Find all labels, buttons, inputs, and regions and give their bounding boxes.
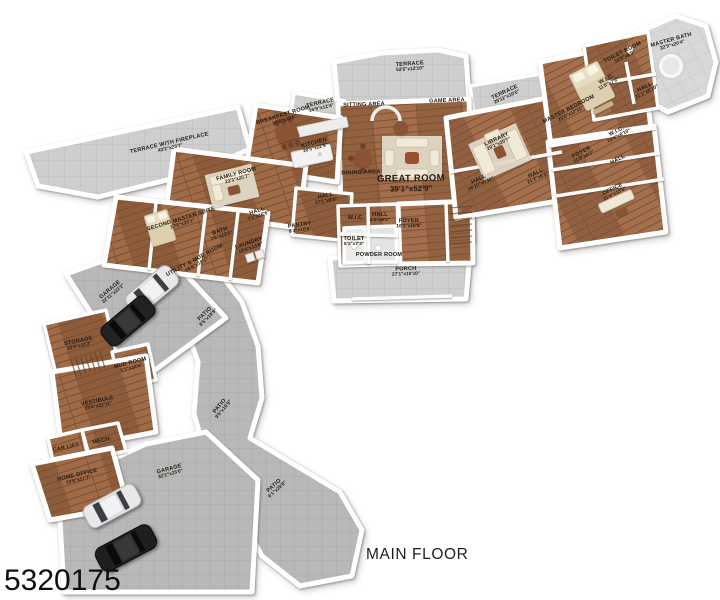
armchair	[430, 150, 439, 166]
dining-chair	[348, 155, 353, 160]
room-label-hall-foyer: HALL4'1"x9'2"	[370, 212, 390, 224]
terrace-top-floor	[334, 50, 469, 104]
room-label-great-room: GREAT ROOM39'1"x52'9"	[377, 174, 445, 195]
listing-id: 5320175	[4, 564, 121, 598]
dining-table	[354, 149, 372, 167]
floor-plan-page: { "footer": { "floor_label": "MAIN FLOOR…	[0, 0, 720, 600]
room-label-toilet: TOILET5'1"x7'3"	[344, 236, 365, 248]
room-label-game-area: GAME AREA	[429, 97, 465, 104]
sofa	[396, 138, 428, 147]
room-label-terrace-top: TERRACE52'6"x12'10"	[395, 60, 424, 74]
room-label-powder-room: POWDER ROOM	[356, 252, 402, 258]
coffee-table	[405, 152, 419, 164]
master-bath-tub	[658, 53, 684, 79]
floor-title: MAIN FLOOR	[366, 546, 468, 564]
great-room-round-table	[394, 121, 408, 135]
room-label-foyer: FOYER16'1"x19'8"	[396, 218, 422, 230]
room-label-wic-center: W.I.C.	[348, 215, 364, 221]
dining-chair	[360, 143, 365, 148]
armchair	[385, 150, 394, 166]
powder-sink-icon	[375, 245, 381, 251]
room-label-porch: PORCH27'1"x10'10"	[392, 266, 421, 279]
